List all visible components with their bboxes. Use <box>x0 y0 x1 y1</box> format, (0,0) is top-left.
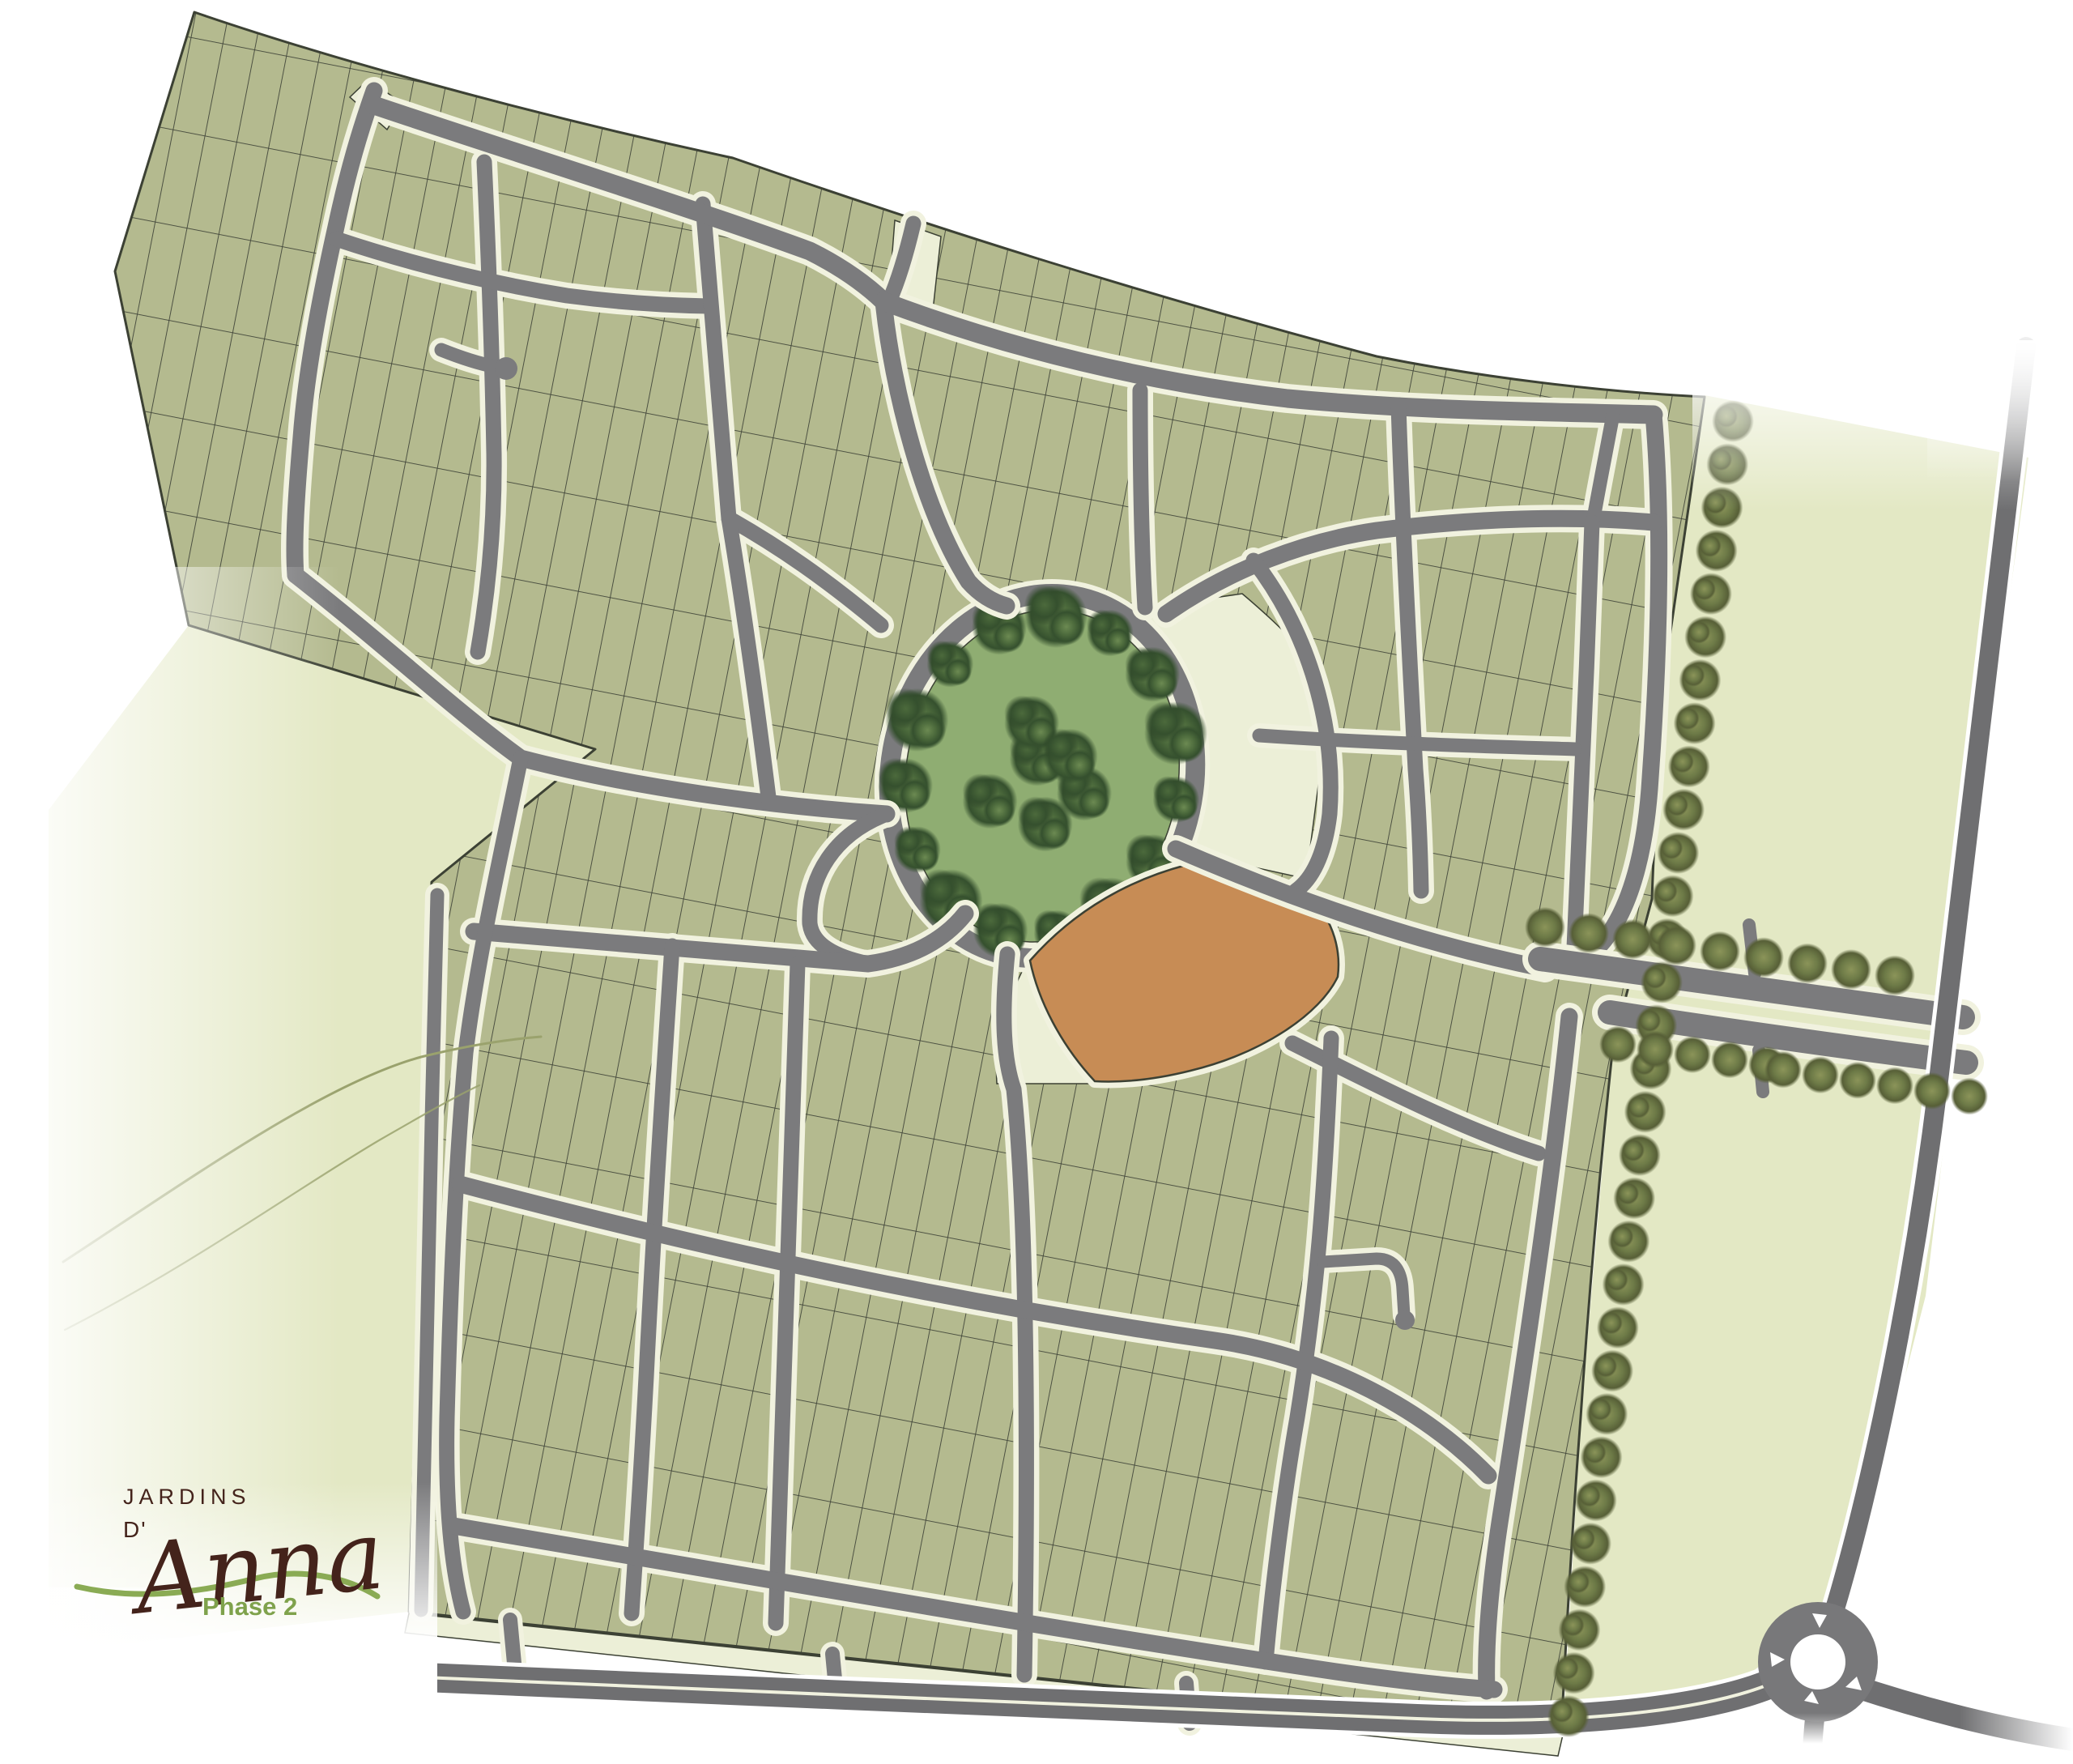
tree-icon <box>1700 931 1740 972</box>
tree-icon <box>1578 1485 1601 1507</box>
tree-icon <box>1584 1441 1607 1464</box>
tree-icon <box>1599 1025 1637 1063</box>
tree-icon <box>1655 880 1678 902</box>
logo-jardins: JARDINS <box>123 1485 251 1509</box>
fade-arterial-east <box>1960 1644 2073 1764</box>
tree-icon <box>1600 1311 1623 1334</box>
fade-arterial-south <box>1765 1713 1871 1764</box>
tree-icon <box>1682 664 1705 687</box>
tree-icon <box>1951 1077 1988 1114</box>
tree-icon <box>1677 707 1700 730</box>
tree-icon <box>1674 1036 1711 1073</box>
tree-icon <box>1638 1009 1661 1032</box>
tree-icon <box>1567 1570 1590 1593</box>
tree-icon <box>1693 577 1716 600</box>
tree-icon <box>1671 750 1694 773</box>
tree-icon <box>1802 1056 1839 1093</box>
tree-icon <box>1622 1139 1645 1161</box>
tree-icon <box>1666 794 1688 816</box>
tree-icon <box>1688 621 1710 644</box>
tree-icon <box>1612 919 1653 960</box>
tree-icon <box>1711 1041 1748 1078</box>
tree-icon <box>1525 907 1565 948</box>
tree-icon <box>1551 1700 1573 1723</box>
tree-icon <box>1656 925 1696 965</box>
roundabout-island <box>1790 1634 1845 1689</box>
culdesac-bulb <box>1395 1310 1415 1330</box>
tree-icon <box>1594 1355 1617 1378</box>
tree-icon <box>1628 1096 1650 1118</box>
tree-icon <box>1606 1268 1628 1291</box>
tree-icon <box>1764 1051 1802 1089</box>
culdesac-bulb <box>495 357 517 380</box>
tree-icon <box>1839 1062 1876 1099</box>
tree-icon <box>1573 1528 1595 1550</box>
tree-icon <box>1611 1225 1633 1248</box>
tree-icon <box>1556 1657 1579 1680</box>
tree-icon <box>1637 1031 1674 1068</box>
roundabout <box>1758 1602 1878 1722</box>
page: JARDINS D' Anna Phase 2 <box>0 0 2073 1764</box>
tree-icon <box>1743 937 1784 978</box>
fade-diagonal-top <box>1927 320 2073 482</box>
tree-icon <box>1875 955 1915 995</box>
site-plan-map: JARDINS D' Anna Phase 2 <box>0 0 2073 1764</box>
tree-icon <box>1589 1398 1611 1421</box>
tree-icon <box>1913 1072 1951 1110</box>
tree-icon <box>1831 949 1871 990</box>
tree-icon <box>1561 1613 1584 1636</box>
tree-icon <box>1876 1067 1913 1104</box>
tree-icon <box>1699 535 1722 557</box>
logo-phase: Phase 2 <box>202 1592 297 1621</box>
tree-icon <box>1569 913 1609 953</box>
tree-icon <box>1616 1182 1639 1204</box>
tree-icon <box>1644 966 1666 989</box>
tree-icon <box>1660 837 1683 859</box>
tree-icon <box>1787 944 1828 984</box>
